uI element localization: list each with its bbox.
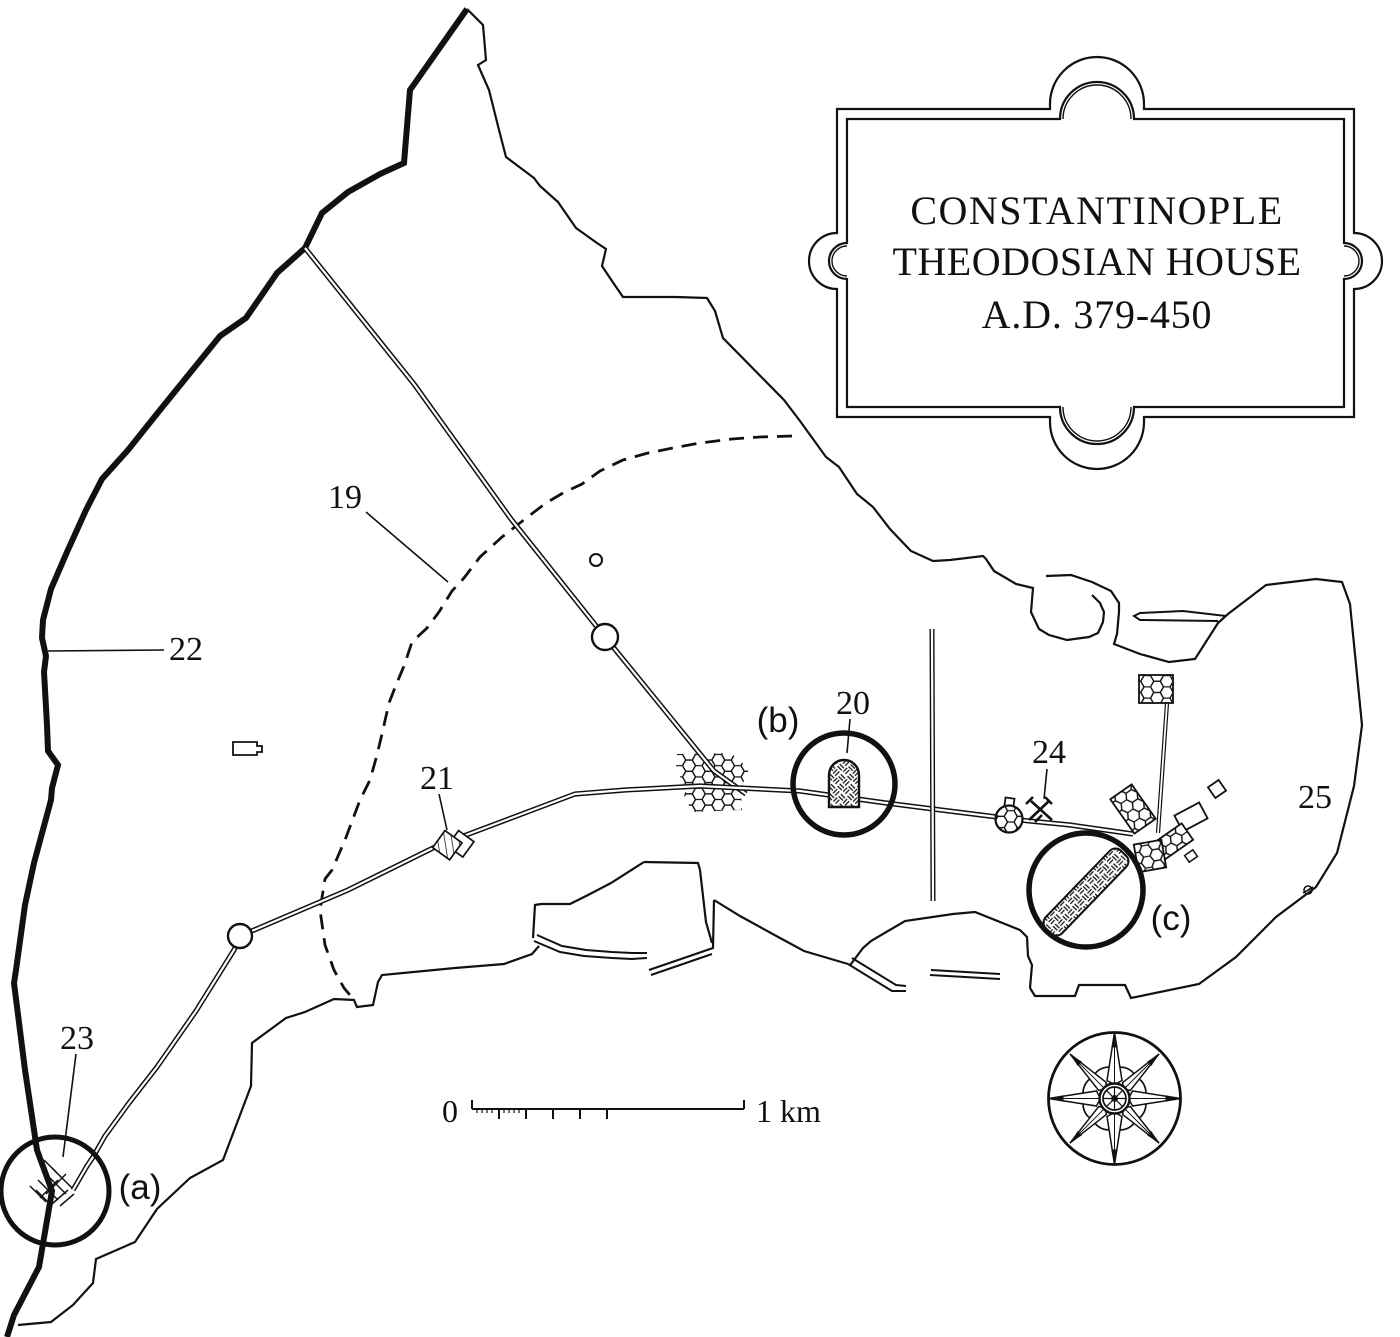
svg-text:0: 0: [442, 1093, 458, 1129]
svg-text:25: 25: [1298, 779, 1332, 816]
svg-text:1 km: 1 km: [756, 1093, 821, 1129]
svg-text:24: 24: [1032, 734, 1066, 771]
svg-text:(b): (b): [757, 701, 800, 740]
svg-text:20: 20: [836, 685, 870, 722]
svg-text:23: 23: [60, 1020, 94, 1057]
svg-text:(a): (a): [119, 1168, 162, 1207]
svg-text:A.D. 379-450: A.D. 379-450: [982, 292, 1213, 337]
svg-text:THEODOSIAN HOUSE: THEODOSIAN HOUSE: [892, 239, 1301, 284]
svg-text:(c): (c): [1151, 899, 1192, 938]
svg-text:21: 21: [420, 760, 454, 797]
svg-text:22: 22: [169, 631, 203, 668]
svg-text:CONSTANTINOPLE: CONSTANTINOPLE: [910, 188, 1283, 233]
svg-text:19: 19: [328, 479, 362, 516]
